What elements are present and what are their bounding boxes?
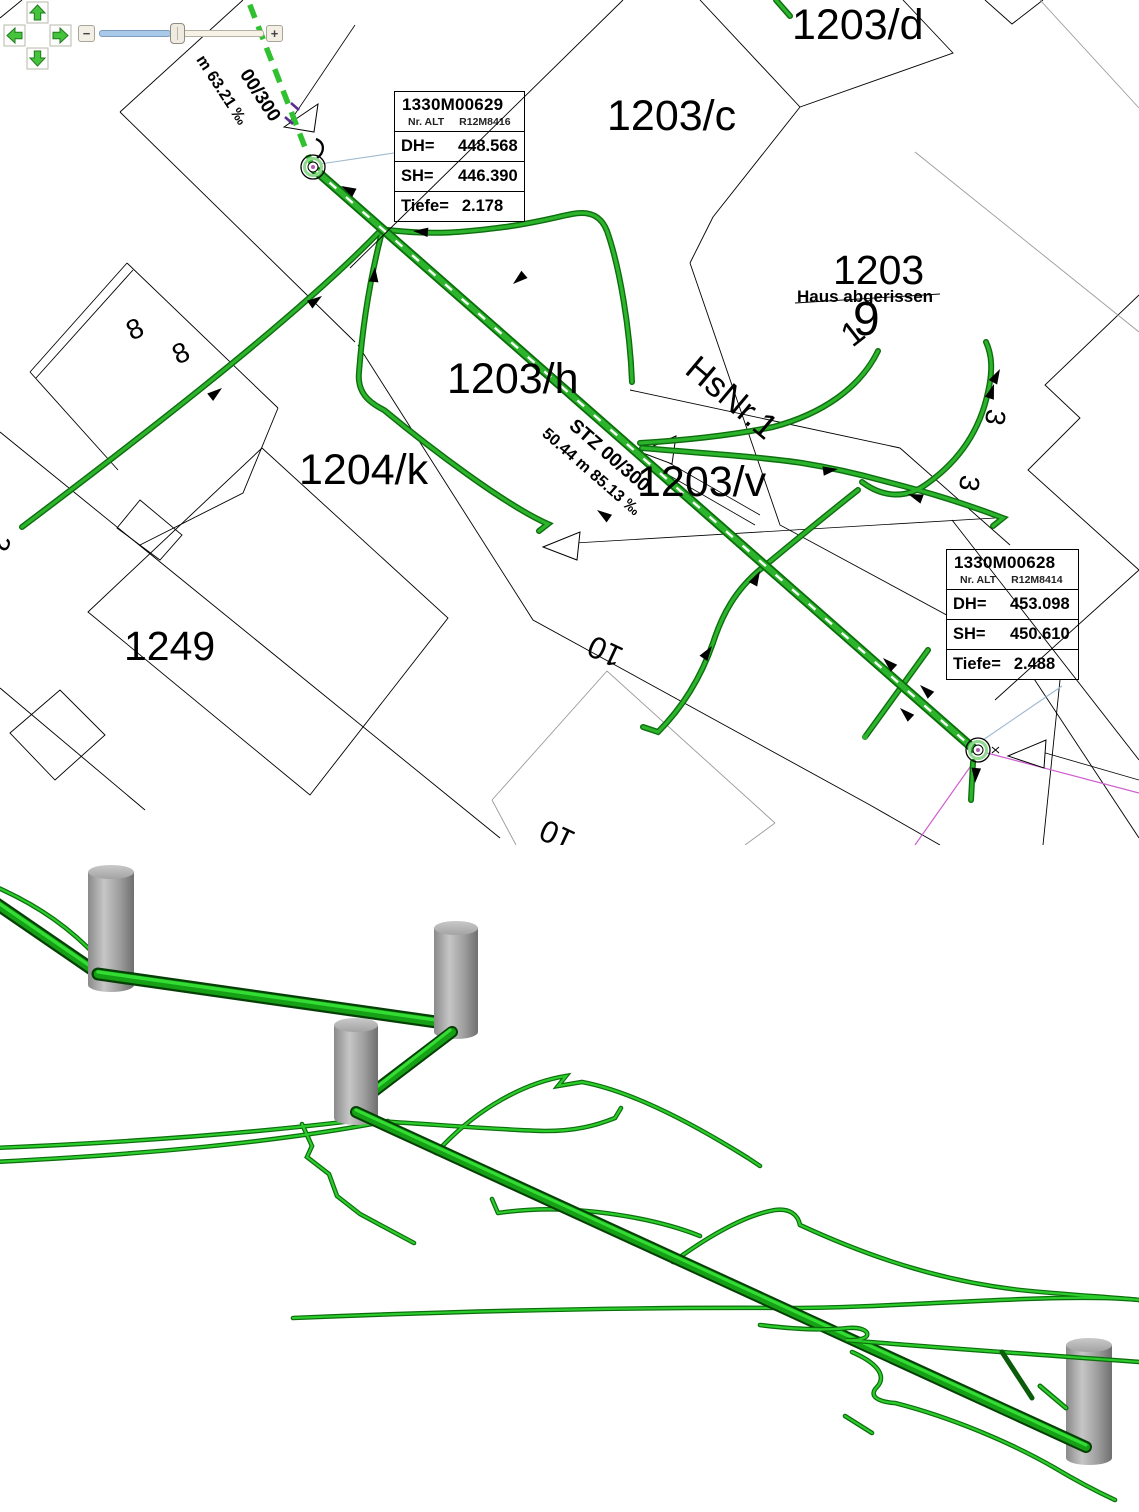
- main-pipe-3d[interactable]: [356, 1110, 1086, 1447]
- dh-value: 453.098: [1010, 595, 1070, 614]
- building-outlines: [492, 0, 1139, 845]
- manhole-info-box: 1330M00629 Nr. ALT R12M8416 DH=448.568 S…: [394, 91, 525, 222]
- nr-alt-label: Nr. ALT: [408, 116, 444, 128]
- parcel-label: 1203/d: [792, 4, 924, 47]
- flow-arrow-icon: [513, 271, 528, 284]
- sh-label: SH=: [953, 625, 997, 644]
- parcel-boundaries: [0, 0, 1139, 845]
- sh-label: SH=: [401, 167, 445, 186]
- dh-label: DH=: [401, 137, 445, 156]
- parcel-label: 1203/c: [607, 95, 736, 138]
- view3d-canvas[interactable]: [0, 845, 1139, 1512]
- zoom-track-rest[interactable]: [175, 30, 264, 37]
- manhole-id: 1330M00629: [402, 95, 520, 115]
- parcel-label: 1203/v: [637, 461, 766, 504]
- manhole-symbol[interactable]: [301, 155, 325, 179]
- pan-control[interactable]: [2, 0, 76, 74]
- parcel-label: 1203/h: [447, 358, 579, 401]
- nr-alt-label: Nr. ALT: [960, 574, 996, 586]
- zoom-out-button[interactable]: −: [78, 25, 95, 42]
- flow-arrow-icon: [908, 494, 924, 504]
- view3d-viewport[interactable]: [0, 845, 1139, 1512]
- manhole-info-box: 1330M00628 Nr. ALT R12M8414 DH=453.098 S…: [946, 549, 1079, 680]
- sh-value: 450.610: [1010, 625, 1070, 644]
- flow-arrow-icon: [597, 510, 612, 522]
- tiefe-value: 2.178: [462, 197, 503, 216]
- parcel-label: 1203: [833, 250, 924, 291]
- zoom-slider[interactable]: − +: [78, 22, 288, 48]
- tiefe-label: Tiefe=: [401, 197, 449, 216]
- zoom-slider-handle[interactable]: [170, 23, 185, 44]
- tiefe-value: 2.488: [1014, 655, 1055, 674]
- map-viewport[interactable]: 1203/d 1203/c 1203 Haus abgerissen 9 1 H…: [0, 0, 1139, 845]
- flow-arrow-icon: [920, 685, 934, 699]
- sh-value: 446.390: [458, 167, 518, 186]
- dh-label: DH=: [953, 595, 997, 614]
- tiefe-label: Tiefe=: [953, 655, 1001, 674]
- parcel-label: 1204/k: [299, 449, 428, 492]
- flow-arrow-icon: [900, 708, 914, 722]
- zoom-in-button[interactable]: +: [266, 25, 283, 42]
- flow-arrow-icon: [207, 388, 222, 401]
- dh-value: 448.568: [458, 137, 518, 156]
- main-pipe-3d[interactable]: [98, 972, 450, 1024]
- zoom-track-filled[interactable]: [99, 30, 171, 37]
- manhole-cylinder-3d[interactable]: [434, 921, 478, 1039]
- main-pipe-3d[interactable]: [0, 900, 96, 972]
- nr-alt-value: R12M8416: [459, 116, 510, 128]
- manhole-id: 1330M00628: [954, 553, 1074, 573]
- gis-application-window: 1203/d 1203/c 1203 Haus abgerissen 9 1 H…: [0, 0, 1139, 1512]
- nr-alt-value: R12M8414: [1011, 574, 1062, 586]
- map-canvas[interactable]: [0, 0, 1139, 845]
- parcel-label: 1249: [124, 626, 215, 667]
- utility-lines-magenta: [915, 753, 1139, 845]
